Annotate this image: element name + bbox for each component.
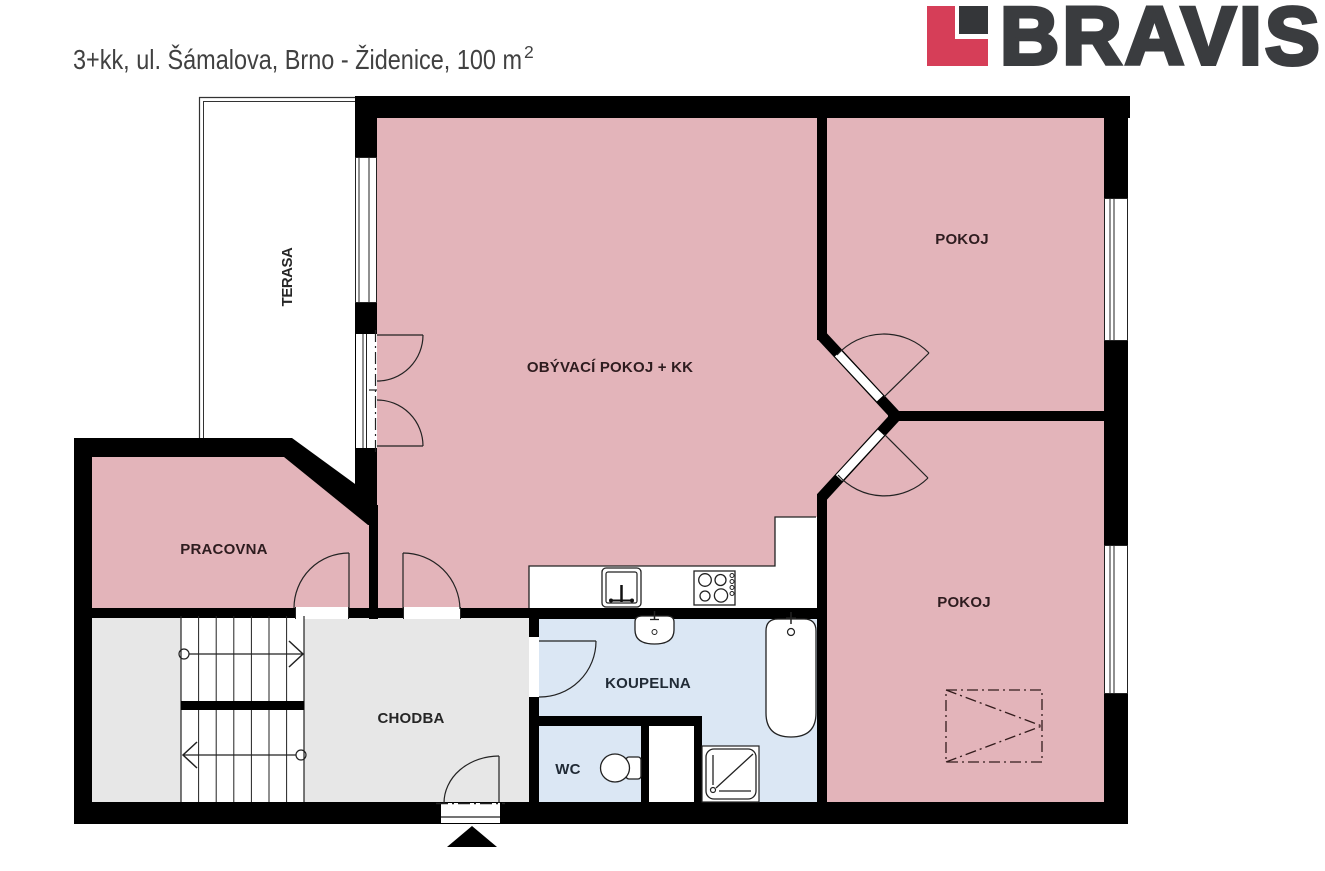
svg-text:3+kk, ul. Šámalova, Brno - Žid: 3+kk, ul. Šámalova, Brno - Židenice, 100… — [73, 44, 522, 75]
svg-text:TERASA: TERASA — [279, 247, 296, 306]
svg-text:POKOJ: POKOJ — [937, 594, 991, 611]
svg-text:KOUPELNA: KOUPELNA — [605, 675, 691, 692]
svg-text:OBÝVACÍ POKOJ + KK: OBÝVACÍ POKOJ + KK — [527, 358, 693, 376]
svg-text:CHODBA: CHODBA — [377, 710, 444, 727]
svg-text:POKOJ: POKOJ — [935, 231, 989, 248]
svg-text:2: 2 — [524, 42, 534, 62]
svg-text:WC: WC — [555, 761, 580, 778]
svg-text:BRAVIS: BRAVIS — [1000, 0, 1323, 82]
svg-text:PRACOVNA: PRACOVNA — [180, 541, 267, 558]
